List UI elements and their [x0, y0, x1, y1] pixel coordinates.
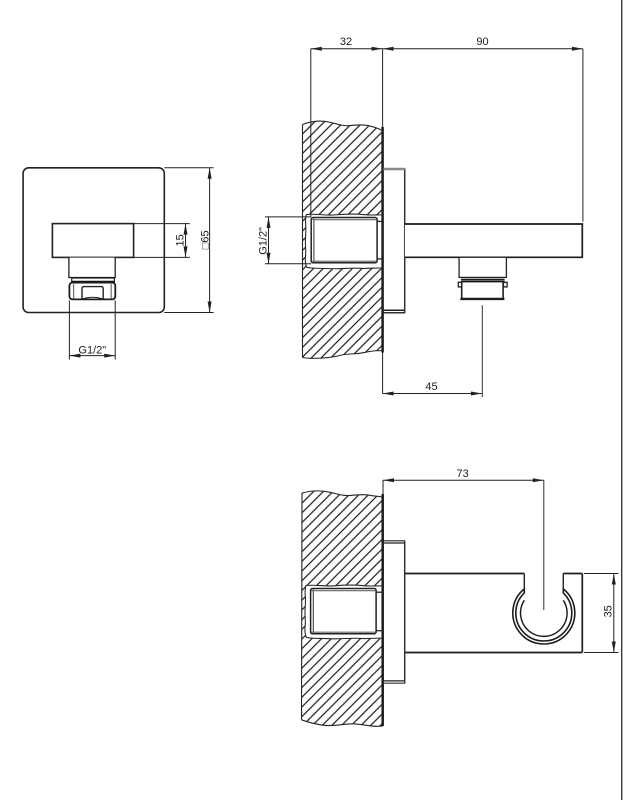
svg-text:15: 15: [174, 234, 186, 246]
svg-text:35: 35: [603, 605, 615, 617]
svg-text:□65: □65: [199, 230, 211, 249]
svg-text:32: 32: [340, 36, 352, 48]
svg-text:G1/2": G1/2": [258, 227, 270, 255]
svg-text:90: 90: [476, 36, 488, 48]
svg-text:73: 73: [456, 468, 468, 480]
svg-text:45: 45: [425, 381, 437, 393]
svg-text:G1/2": G1/2": [78, 344, 106, 356]
